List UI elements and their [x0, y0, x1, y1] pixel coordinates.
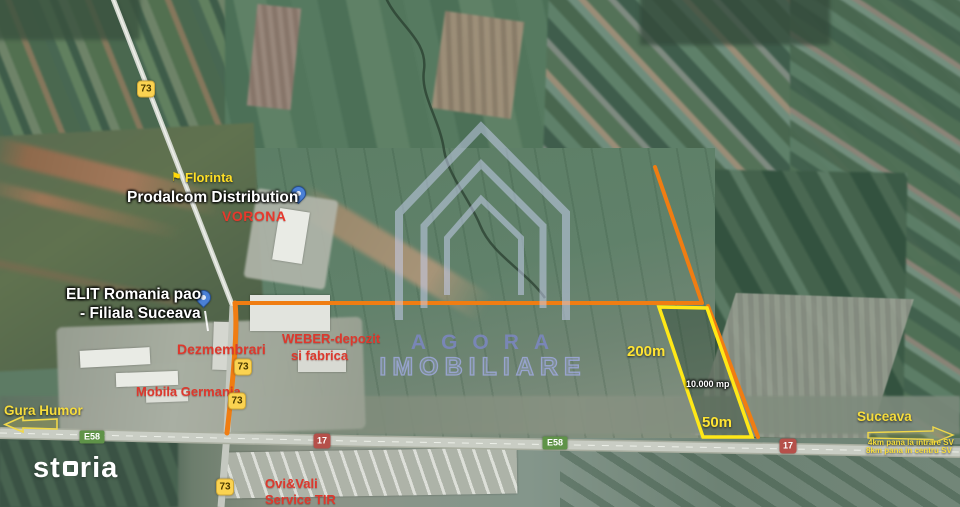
storia-logo: stria — [33, 452, 118, 485]
label-ovi-line2: Service TIR — [265, 493, 336, 507]
label-dezmembrari: Dezmembrari — [177, 342, 266, 357]
route-shield-73-icon: 73 — [234, 359, 252, 376]
label-vorona: VORONA — [222, 209, 286, 224]
storia-logo-letter-o — [63, 461, 78, 476]
label-florinta: Florinta — [185, 171, 233, 185]
route-shield-73-icon: 73 — [228, 393, 246, 410]
label-plot-width: 50m — [702, 415, 732, 431]
route-shield-17-icon: 17 — [780, 439, 797, 454]
storia-logo-text-right: ria — [80, 452, 118, 485]
storia-logo-text-left: st — [33, 452, 61, 485]
agency-house-logo — [399, 127, 566, 320]
label-prodalcom: Prodalcom Distribution — [127, 190, 298, 206]
route-shield-e58-icon: E58 — [80, 431, 105, 444]
label-mobila-germania: Mobila Germania — [136, 385, 241, 399]
label-gura-humor: Gura Humor — [4, 404, 83, 418]
route-line-north — [655, 167, 702, 303]
label-plot-area: 10.000 mp — [686, 380, 730, 389]
watermark-agency-subtitle: IMOBILIARE — [368, 354, 592, 380]
map-overlay-graphics — [0, 0, 960, 507]
route-shield-17-icon: 17 — [314, 434, 331, 449]
route-shield-e58-icon: E58 — [543, 437, 568, 450]
satellite-map-screenshot: ⚑ Florinta Prodalcom Distribution VORONA… — [0, 0, 960, 507]
label-plot-length: 200m — [627, 344, 665, 360]
pin-leader-line — [205, 311, 208, 331]
label-elit-line1: ELIT Romania pao — [66, 287, 201, 303]
label-weber-line2: si fabrica — [291, 349, 348, 363]
florinta-landmark-icon: ⚑ — [171, 170, 182, 184]
route-shield-73-icon: 73 — [137, 81, 155, 98]
label-distance-line2: 8km pana in centru SV — [866, 447, 952, 455]
label-weber-line1: WEBER-depozit — [282, 332, 380, 346]
label-suceava: Suceava — [857, 410, 912, 424]
label-elit-line2: - Filiala Suceava — [80, 306, 201, 322]
route-shield-73-icon: 73 — [216, 479, 234, 496]
label-ovi-line1: Ovi&Vali — [265, 477, 318, 491]
watermark-agency-name: AGORA — [370, 332, 590, 354]
